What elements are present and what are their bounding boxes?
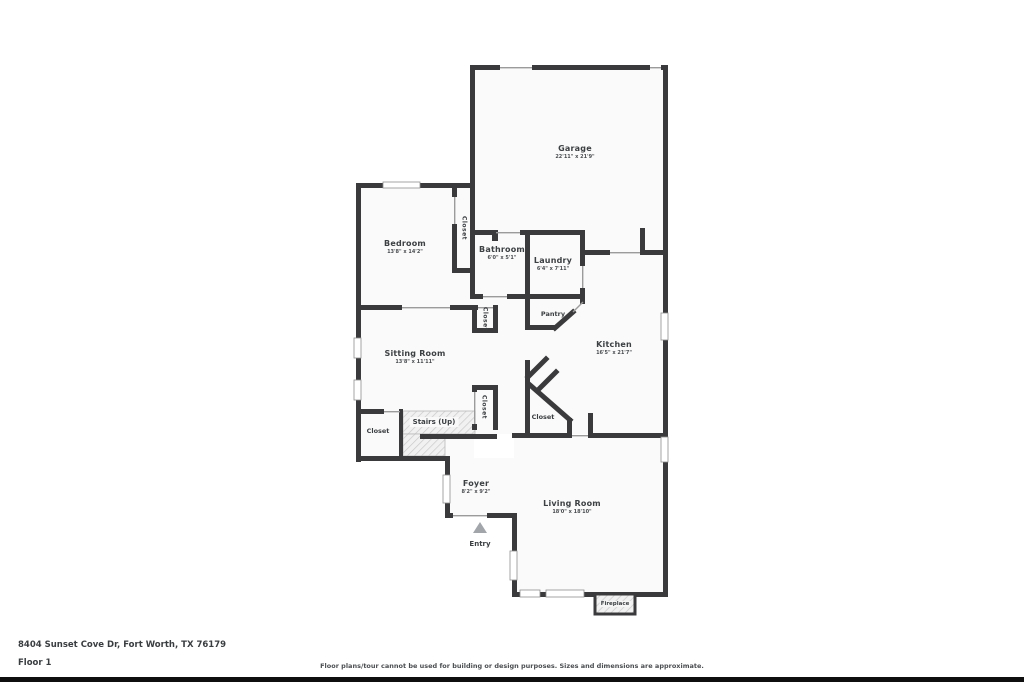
room-label-kitchen: Kitchen 16'5" x 21'7" [596, 340, 632, 356]
closet-label-hall: Closet [482, 307, 489, 331]
closet-label-stairs-side: Closet [481, 395, 488, 419]
stairs-label: Stairs (Up) [410, 417, 459, 427]
property-address: 8404 Sunset Cove Dr, Fort Worth, TX 7617… [18, 640, 226, 650]
bottom-bar [0, 677, 1024, 682]
closet-label-kitchen: Closet [532, 413, 555, 421]
disclaimer-text: Floor plans/tour cannot be used for buil… [0, 662, 1024, 670]
closet-label-entry-hall: Closet [367, 427, 390, 435]
floor-plan-canvas [0, 0, 1024, 682]
room-label-garage: Garage 22'11" x 21'9" [555, 144, 594, 160]
entry-label: Entry [469, 540, 490, 548]
room-label-pantry: Pantry [541, 310, 565, 318]
closet-label-bedroom: Closet [461, 216, 468, 240]
room-label-bathroom: Bathroom 6'0" x 5'1" [479, 245, 525, 261]
room-label-bedroom: Bedroom 13'8" x 14'2" [384, 239, 426, 255]
room-label-sitting-room: Sitting Room 13'8" x 11'11" [385, 349, 446, 365]
fireplace-label: Fireplace [600, 601, 631, 607]
room-label-foyer: Foyer 8'2" x 9'2" [462, 479, 491, 495]
entry-arrow-icon [473, 522, 487, 533]
room-label-living-room: Living Room 18'0" x 18'10" [543, 499, 601, 515]
floor-plan-page: Garage 22'11" x 21'9" Bedroom 13'8" x 14… [0, 0, 1024, 682]
room-label-laundry: Laundry 6'4" x 7'11" [534, 256, 572, 272]
